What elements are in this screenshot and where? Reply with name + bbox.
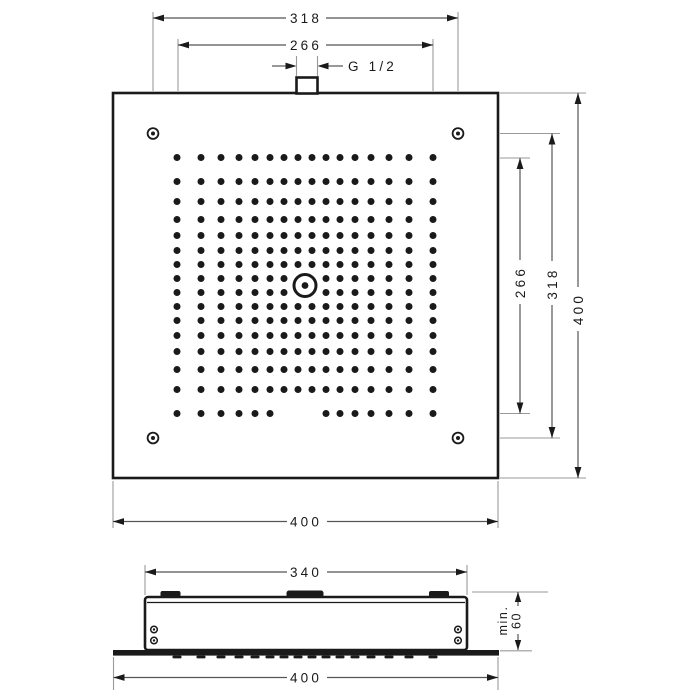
nozzle-dot (281, 154, 288, 161)
nozzle-dot (295, 332, 302, 339)
nozzle-dot (198, 332, 205, 339)
nozzle-dot (218, 303, 225, 310)
nozzle-dot (368, 348, 375, 355)
nozzle-dot (281, 366, 288, 373)
nozzle-dot (309, 303, 316, 310)
nozzle-dot (406, 154, 413, 161)
nozzle-dot (309, 154, 316, 161)
nozzle-dot (309, 332, 316, 339)
nozzle-dot (352, 332, 359, 339)
nozzle-dot (337, 317, 344, 324)
nozzle-dot (252, 386, 259, 393)
nozzle-dot (198, 216, 205, 223)
nozzle-dot (406, 289, 413, 296)
nozzle-dot (198, 261, 205, 268)
clip-center (287, 591, 324, 598)
nozzle-dot (368, 289, 375, 296)
nozzle-dot (352, 216, 359, 223)
top-view: 318 266 G 1/2 400 266 318 400 (113, 11, 586, 530)
nozzle-dot (406, 366, 413, 373)
nozzle-dot (281, 386, 288, 393)
nozzle-dot (281, 348, 288, 355)
nozzle-dot (252, 216, 259, 223)
nozzle-dot (386, 386, 393, 393)
nozzle-dot (198, 198, 205, 205)
nozzle-dot (236, 216, 243, 223)
nozzle-dot (267, 178, 274, 185)
nozzle-dot (236, 289, 243, 296)
nozzle-dot (281, 178, 288, 185)
nozzle-dash (336, 656, 345, 659)
nozzle-dot (352, 303, 359, 310)
nozzle-dot (281, 332, 288, 339)
nozzle-dot (281, 198, 288, 205)
screw-bottom-right (453, 433, 464, 444)
nozzle-dot (386, 332, 393, 339)
nozzle-dot (337, 332, 344, 339)
nozzle-dot (218, 178, 225, 185)
nozzle-dot (368, 275, 375, 282)
nozzle-dot (218, 198, 225, 205)
nozzle-dot (198, 232, 205, 239)
nozzle-dash (280, 656, 289, 659)
nozzle-dot (386, 317, 393, 324)
nozzle-dot (430, 216, 437, 223)
nozzle-dot (267, 317, 274, 324)
nozzle-dot (309, 232, 316, 239)
nozzle-dot (337, 216, 344, 223)
nozzle-dash (405, 656, 414, 659)
nozzle-dot (337, 154, 344, 161)
nozzle-dot (267, 198, 274, 205)
nozzle-dot (174, 348, 181, 355)
nozzle-dot (323, 198, 330, 205)
nozzle-dot (309, 178, 316, 185)
technical-drawing-page: 318 266 G 1/2 400 266 318 400 (0, 0, 700, 700)
nozzle-dot (218, 154, 225, 161)
nozzle-dot (174, 303, 181, 310)
nozzle-dot (368, 178, 375, 185)
nozzle-dot (406, 178, 413, 185)
nozzle-dot (430, 154, 437, 161)
screw-bottom-left (148, 433, 159, 444)
nozzle-dot (386, 232, 393, 239)
nozzle-dot (218, 289, 225, 296)
nozzle-dot (430, 348, 437, 355)
nozzle-dash (322, 656, 331, 659)
nozzle-dot (218, 216, 225, 223)
nozzle-dot (309, 198, 316, 205)
nozzle-dot (430, 261, 437, 268)
nozzle-dot (267, 303, 274, 310)
nozzle-dot (281, 289, 288, 296)
nozzle-dot (430, 410, 437, 417)
nozzle-dot (236, 232, 243, 239)
nozzle-dot (295, 198, 302, 205)
nozzle-dot (406, 303, 413, 310)
nozzle-dot (323, 348, 330, 355)
nozzle-dot (281, 303, 288, 310)
nozzle-dot (267, 275, 274, 282)
nozzle-dot (406, 216, 413, 223)
nozzle-dot (174, 275, 181, 282)
nozzle-dot (267, 366, 274, 373)
nozzle-dot (236, 332, 243, 339)
nozzle-dot (337, 178, 344, 185)
nozzle-dot (352, 247, 359, 254)
nozzle-dot (295, 232, 302, 239)
nozzle-dot (309, 366, 316, 373)
nozzle-dash (367, 656, 376, 659)
nozzle-dot (406, 386, 413, 393)
nozzle-dot (323, 232, 330, 239)
nozzle-dot (430, 232, 437, 239)
nozzle-dot (309, 317, 316, 324)
dim-label-340-side: 340 (290, 565, 322, 580)
nozzle-dot (198, 154, 205, 161)
nozzle-dot (252, 303, 259, 310)
nozzle-dot (323, 178, 330, 185)
nozzle-dot (218, 366, 225, 373)
nozzle-dot (174, 289, 181, 296)
nozzle-dot (252, 332, 259, 339)
center-nozzle-ring (294, 275, 316, 297)
nozzle-dot (352, 232, 359, 239)
nozzle-dot (295, 366, 302, 373)
nozzle-dot (218, 275, 225, 282)
nozzle-dot (309, 216, 316, 223)
nozzle-dot (281, 261, 288, 268)
nozzle-dot (267, 232, 274, 239)
nozzle-dot (174, 386, 181, 393)
nozzle-dot (295, 261, 302, 268)
side-view: 340 400 min. 60 (113, 565, 548, 690)
nozzle-dot (281, 275, 288, 282)
nozzle-dot (252, 232, 259, 239)
nozzle-dot (352, 178, 359, 185)
nozzle-dot (386, 198, 393, 205)
nozzle-dot (218, 410, 225, 417)
nozzle-dot (386, 348, 393, 355)
nozzle-dot (198, 303, 205, 310)
nozzle-dot (174, 232, 181, 239)
nozzle-dot (174, 178, 181, 185)
nozzle-dot (368, 317, 375, 324)
housing-body (145, 597, 467, 650)
nozzle-dot (337, 261, 344, 268)
nozzle-dot (386, 303, 393, 310)
nozzle-dot (323, 317, 330, 324)
nozzle-dash (266, 656, 275, 659)
nozzle-dot (267, 386, 274, 393)
nozzle-dot (198, 317, 205, 324)
nozzle-dot (386, 216, 393, 223)
nozzle-dot (352, 289, 359, 296)
nozzle-dot (295, 178, 302, 185)
nozzle-dot (406, 247, 413, 254)
clip-right (429, 591, 449, 598)
dim-label-60: 60 (510, 612, 524, 629)
nozzle-dot (252, 261, 259, 268)
nozzle-dot (352, 366, 359, 373)
nozzle-dot (281, 216, 288, 223)
nozzle-dot (236, 348, 243, 355)
nozzle-dot (236, 247, 243, 254)
nozzle-dot (368, 247, 375, 254)
ceiling-face-plate (113, 650, 499, 656)
nozzle-dot (252, 247, 259, 254)
dim-label-318-top: 318 (290, 11, 322, 26)
nozzle-dot (295, 247, 302, 254)
nozzle-dot (267, 154, 274, 161)
nozzle-dot (174, 332, 181, 339)
nozzle-dot (430, 198, 437, 205)
nozzle-dot (252, 289, 259, 296)
nozzle-dot (236, 198, 243, 205)
nozzle-dot (198, 410, 205, 417)
nozzle-dot (368, 366, 375, 373)
nozzle-dot (352, 275, 359, 282)
nozzle-dot (218, 261, 225, 268)
nozzle-dot (386, 261, 393, 268)
nozzle-dot (252, 317, 259, 324)
nozzle-dot (337, 232, 344, 239)
nozzle-dot (295, 154, 302, 161)
nozzle-dot (236, 154, 243, 161)
nozzle-dot (267, 332, 274, 339)
nozzle-dot (236, 317, 243, 324)
nozzle-dot (406, 332, 413, 339)
nozzle-dot (430, 386, 437, 393)
nozzle-dot (352, 154, 359, 161)
nozzle-dot (236, 410, 243, 417)
nozzle-dot (252, 154, 259, 161)
nozzle-dot (267, 348, 274, 355)
screw-top-right (453, 128, 464, 139)
nozzle-dot (267, 216, 274, 223)
nozzle-dot (430, 332, 437, 339)
nozzle-dash (235, 656, 244, 659)
screw-top-left (148, 128, 159, 139)
nozzle-dot (198, 275, 205, 282)
nozzle-dot (174, 261, 181, 268)
nozzle-dot (368, 154, 375, 161)
nozzle-dot (368, 410, 375, 417)
nozzle-dot (295, 317, 302, 324)
nozzle-dot (174, 247, 181, 254)
nozzle-dot (323, 366, 330, 373)
nozzle-dot (323, 410, 330, 417)
nozzle-dot (309, 386, 316, 393)
nozzle-dash (385, 656, 394, 659)
dim-label-min: min. (496, 605, 510, 635)
nozzle-dot (174, 198, 181, 205)
thread-size-label: G 1/2 (348, 59, 397, 74)
nozzle-dot (218, 317, 225, 324)
nozzle-dot (337, 410, 344, 417)
nozzle-dot (386, 275, 393, 282)
nozzle-dot (323, 332, 330, 339)
nozzle-dot (198, 289, 205, 296)
nozzle-dot (430, 366, 437, 373)
nozzle-dot (236, 386, 243, 393)
nozzle-dot (337, 275, 344, 282)
nozzle-dot (323, 289, 330, 296)
water-inlet-connector (297, 78, 318, 94)
nozzle-dot (406, 317, 413, 324)
nozzle-dot (174, 317, 181, 324)
nozzle-dot (430, 289, 437, 296)
shower-dimension-drawing: 318 266 G 1/2 400 266 318 400 (0, 0, 700, 700)
nozzle-dot (218, 247, 225, 254)
nozzle-dot (218, 232, 225, 239)
nozzle-dot (252, 275, 259, 282)
nozzle-dot (236, 178, 243, 185)
nozzle-dot (174, 410, 181, 417)
dim-label-318-right: 318 (545, 267, 560, 299)
nozzle-dot (218, 386, 225, 393)
nozzle-dash (351, 656, 360, 659)
nozzle-dot (323, 216, 330, 223)
nozzle-dot (267, 247, 274, 254)
nozzle-dash (217, 656, 226, 659)
nozzle-dot (430, 178, 437, 185)
nozzle-dot (368, 386, 375, 393)
nozzle-dash (173, 656, 182, 659)
nozzle-dot (386, 366, 393, 373)
nozzle-dot (198, 348, 205, 355)
nozzle-dot (406, 348, 413, 355)
nozzle-dot (281, 317, 288, 324)
nozzle-dot (252, 410, 259, 417)
nozzle-dot (352, 348, 359, 355)
nozzle-dot (337, 386, 344, 393)
nozzle-dot (252, 366, 259, 373)
nozzle-dot (406, 261, 413, 268)
nozzle-dot (368, 198, 375, 205)
nozzle-dot (337, 348, 344, 355)
nozzle-dot (406, 275, 413, 282)
nozzle-dot (352, 198, 359, 205)
nozzle-dot (236, 303, 243, 310)
dim-label-400-bottom: 400 (290, 514, 322, 529)
nozzle-dot (337, 303, 344, 310)
nozzle-dot (295, 216, 302, 223)
nozzle-dot (174, 366, 181, 373)
nozzle-dot (337, 289, 344, 296)
nozzle-dot (337, 198, 344, 205)
nozzle-dot (352, 410, 359, 417)
nozzle-dash (308, 656, 317, 659)
nozzle-dot (309, 247, 316, 254)
nozzle-dot (174, 216, 181, 223)
nozzle-dot (430, 303, 437, 310)
nozzle-dot (198, 386, 205, 393)
nozzle-dot (267, 289, 274, 296)
nozzle-dot (323, 303, 330, 310)
nozzle-dot (406, 198, 413, 205)
nozzle-dot (323, 261, 330, 268)
nozzle-dot (295, 303, 302, 310)
nozzle-dot (368, 261, 375, 268)
nozzle-dot (406, 410, 413, 417)
nozzle-dot (386, 247, 393, 254)
nozzle-dot (323, 247, 330, 254)
nozzle-dot (386, 289, 393, 296)
nozzle-dot (352, 386, 359, 393)
nozzle-dot (368, 332, 375, 339)
dim-label-266-top: 266 (290, 38, 322, 53)
nozzle-dot (198, 366, 205, 373)
nozzle-dot (406, 232, 413, 239)
nozzle-dot (198, 178, 205, 185)
nozzle-dot (368, 232, 375, 239)
nozzle-dot (337, 247, 344, 254)
nozzle-dot (236, 366, 243, 373)
nozzle-dot (386, 178, 393, 185)
nozzle-dot (386, 154, 393, 161)
nozzle-dash (197, 656, 206, 659)
nozzle-dot (368, 303, 375, 310)
nozzle-dot (295, 348, 302, 355)
dim-label-400-side: 400 (290, 670, 322, 685)
nozzle-dot (198, 247, 205, 254)
nozzle-dot (218, 332, 225, 339)
nozzle-dot (309, 261, 316, 268)
nozzle-dash (294, 656, 303, 659)
nozzle-dot (218, 348, 225, 355)
nozzle-dot (352, 261, 359, 268)
nozzle-dot (323, 154, 330, 161)
nozzle-dot (323, 275, 330, 282)
nozzle-dot (267, 410, 274, 417)
nozzle-dot (430, 275, 437, 282)
nozzle-dot (337, 366, 344, 373)
nozzle-dot (430, 247, 437, 254)
nozzle-dot (236, 261, 243, 268)
nozzle-dot (267, 261, 274, 268)
nozzle-dot (368, 216, 375, 223)
nozzle-dot (281, 232, 288, 239)
nozzle-dot (386, 410, 393, 417)
clip-left (161, 591, 181, 598)
nozzle-dot (252, 178, 259, 185)
nozzle-dot (236, 275, 243, 282)
nozzle-dash (429, 656, 438, 659)
nozzle-dot (352, 317, 359, 324)
nozzle-dot (309, 348, 316, 355)
nozzle-dash (251, 656, 260, 659)
nozzle-dot (323, 386, 330, 393)
nozzle-dot (252, 198, 259, 205)
nozzle-dot (252, 348, 259, 355)
nozzle-dashes-side (173, 656, 438, 659)
nozzle-dot (295, 386, 302, 393)
nozzle-dot (430, 317, 437, 324)
nozzle-dot (281, 247, 288, 254)
dim-label-266-right: 266 (513, 266, 528, 298)
dim-label-400-right: 400 (571, 293, 586, 325)
nozzle-dot (174, 154, 181, 161)
